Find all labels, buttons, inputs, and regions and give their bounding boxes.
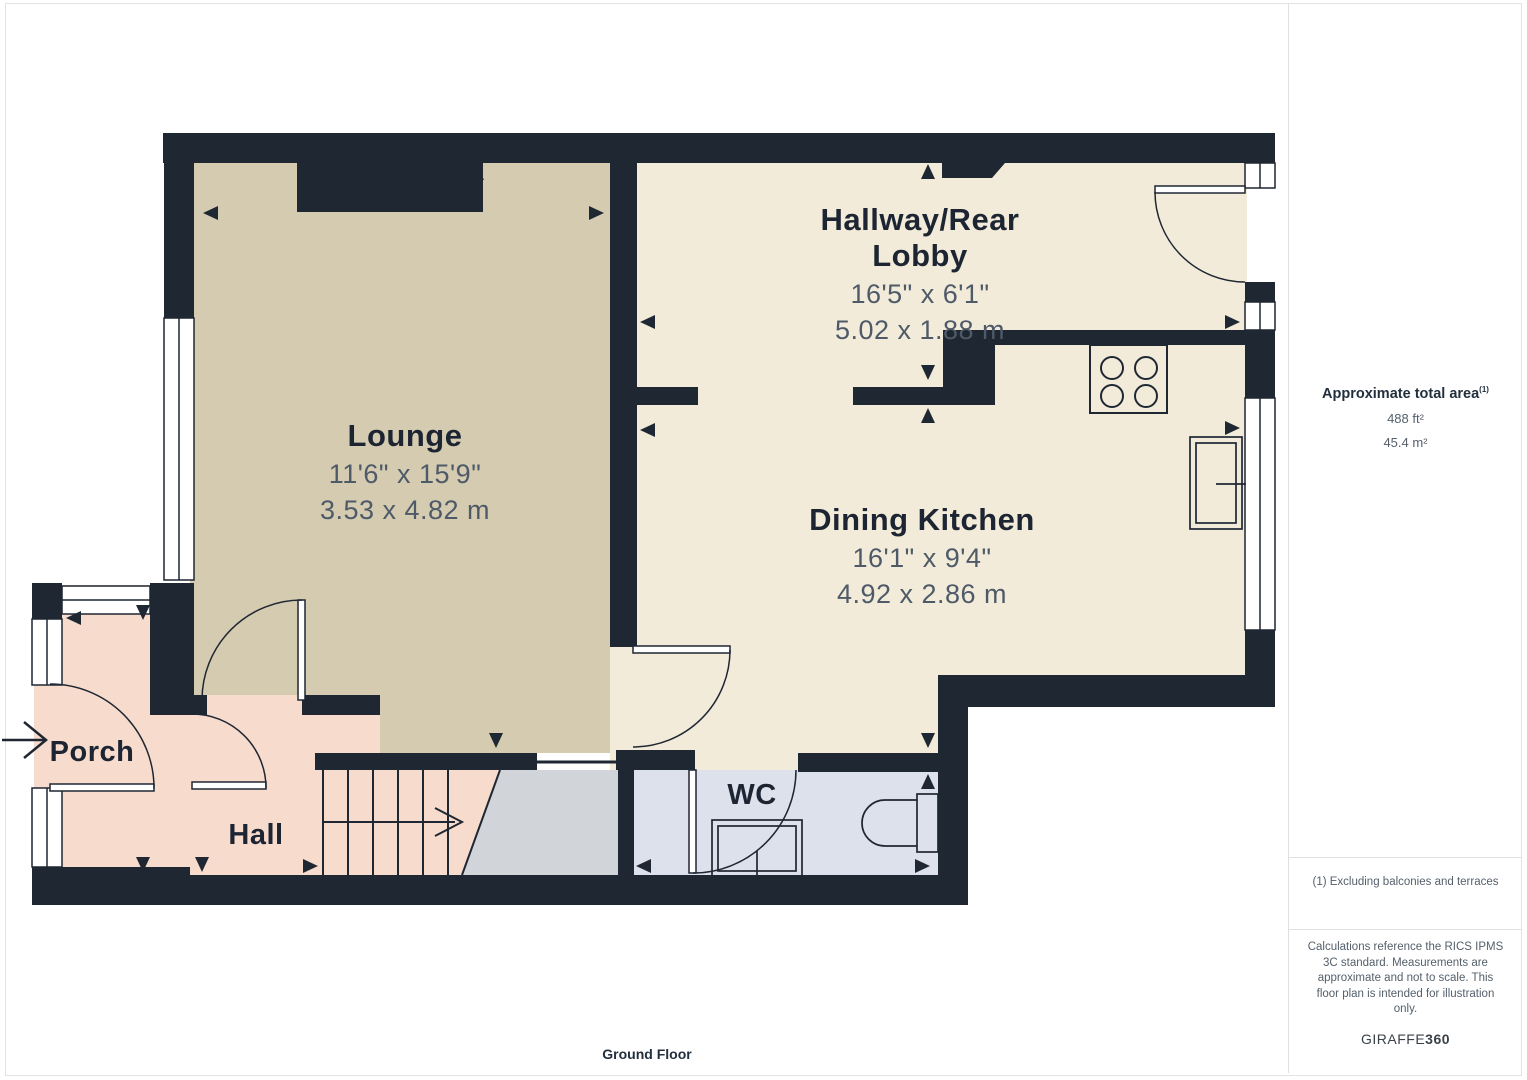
total-area-title-text: Approximate total area [1322,386,1479,402]
hallway-right-window-upper [1245,163,1275,188]
porch-left-window-upper [32,619,62,685]
porch-top-window [62,586,150,614]
kitchen-window [1245,398,1275,630]
brand-360: 360 [1425,1031,1450,1047]
floor-label: Ground Floor [567,1046,727,1062]
wc-label: WC [702,779,802,812]
room-dims-metric: 5.02 x 1.88 m [770,315,1070,346]
porch-left-window-lower [32,788,62,867]
total-area-m: 45.4 m² [1289,435,1522,450]
room-name: Porch [32,736,152,769]
room-dims-metric: 3.53 x 4.82 m [255,495,555,526]
total-area-title: Approximate total area(1) [1289,385,1522,402]
room-name: Lounge [255,418,555,454]
total-area-ft: 488 ft² [1289,411,1522,426]
room-dims-imperial: 16'5" x 6'1" [770,279,1070,310]
room-dims-imperial: 16'1" x 9'4" [772,543,1072,574]
total-area-block: Approximate total area(1) 488 ft² 45.4 m… [1289,385,1522,450]
brand-logo: GIRAFFE360 [1289,1031,1522,1047]
room-name: Hall [196,819,316,852]
dining-kitchen-label: Dining Kitchen 16'1" x 9'4" 4.92 x 2.86 … [772,502,1072,610]
room-name: WC [702,779,802,812]
sidebar: Approximate total area(1) 488 ft² 45.4 m… [1288,4,1522,1073]
room-dims-metric: 4.92 x 2.86 m [772,579,1072,610]
sidebar-divider [1289,929,1522,930]
lounge-window [164,318,194,580]
room-name: Dining Kitchen [772,502,1072,538]
lounge-label: Lounge 11'6" x 15'9" 3.53 x 4.82 m [255,418,555,526]
room-dims-imperial: 11'6" x 15'9" [255,459,555,490]
disclaimer: Calculations reference the RICS IPMS 3C … [1289,940,1522,1018]
sidebar-divider [1289,857,1522,858]
footnote: (1) Excluding balconies and terraces [1289,876,1522,888]
room-name: Hallway/Rear Lobby [770,202,1070,274]
brand-name: GIRAFFE [1361,1031,1425,1047]
hall-label: Hall [196,819,316,852]
hallway-right-window-lower [1245,302,1275,330]
porch-label: Porch [32,736,152,769]
hallway-label: Hallway/Rear Lobby 16'5" x 6'1" 5.02 x 1… [770,202,1070,346]
total-area-footnote-ref: (1) [1479,385,1489,394]
